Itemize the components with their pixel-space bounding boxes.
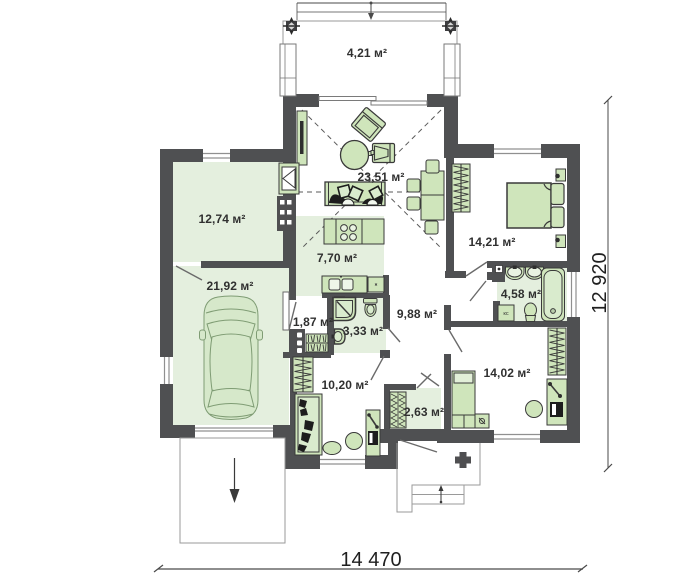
svg-text:10,20 м²: 10,20 м² <box>321 378 368 392</box>
svg-text:7,70 м²: 7,70 м² <box>317 251 357 265</box>
svg-text:3,33 м²: 3,33 м² <box>343 324 383 338</box>
svg-text:14,02 м²: 14,02 м² <box>483 366 530 380</box>
svg-text:2,63 м²: 2,63 м² <box>404 405 444 419</box>
svg-text:4,21 м²: 4,21 м² <box>347 46 387 60</box>
svg-text:12,74 м²: 12,74 м² <box>198 212 245 226</box>
svg-text:4,58 м²: 4,58 м² <box>501 287 541 301</box>
svg-text:9,88 м²: 9,88 м² <box>397 307 437 321</box>
svg-text:кс: кс <box>503 311 508 317</box>
svg-text:23,51 м²: 23,51 м² <box>357 170 404 184</box>
svg-text:14,21 м²: 14,21 м² <box>468 235 515 249</box>
svg-text:1,87 м²: 1,87 м² <box>293 315 333 329</box>
svg-text:21,92 м²: 21,92 м² <box>206 279 253 293</box>
svg-text:12 920: 12 920 <box>589 252 611 313</box>
svg-text:14 470: 14 470 <box>340 549 401 571</box>
